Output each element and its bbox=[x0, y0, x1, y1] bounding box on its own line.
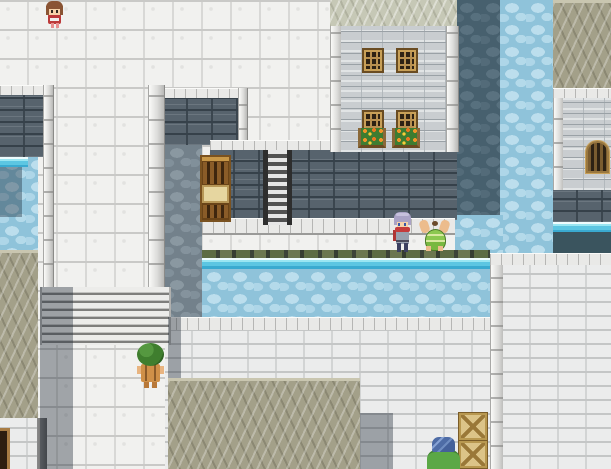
npc-hero[interactable] bbox=[392, 212, 413, 253]
lower-roof-left bbox=[0, 250, 38, 421]
afro-leg bbox=[152, 382, 157, 388]
canal-water bbox=[202, 269, 490, 318]
retaining-wall bbox=[210, 150, 457, 220]
npc-green-cloak[interactable] bbox=[427, 437, 460, 469]
hero-eye bbox=[404, 223, 406, 226]
pool-left-shadow bbox=[0, 167, 22, 217]
shadow-stairs-plaza bbox=[40, 287, 73, 469]
window-glass bbox=[366, 52, 380, 69]
metal-ladder[interactable] bbox=[263, 150, 292, 225]
shadow-lower-plaza bbox=[360, 413, 393, 469]
building-right-lower-wall bbox=[553, 190, 611, 222]
window-upper-right[interactable] bbox=[396, 48, 418, 73]
girl-eye bbox=[56, 10, 58, 13]
afro-hair bbox=[137, 343, 164, 366]
channel-right-water bbox=[500, 0, 553, 253]
arch-window[interactable] bbox=[586, 141, 609, 173]
hero-scarf bbox=[395, 227, 410, 232]
doorway-bottom-left[interactable] bbox=[0, 428, 10, 469]
hero-hair-highlight bbox=[396, 213, 409, 216]
npc-girl[interactable] bbox=[45, 0, 64, 29]
walkway-rail-left bbox=[43, 85, 54, 287]
girl-hair-side bbox=[46, 6, 49, 15]
ledge-wall-mid bbox=[163, 98, 245, 145]
building-top-pillar-right bbox=[446, 26, 459, 152]
afro-body bbox=[141, 364, 160, 382]
girl-eye bbox=[51, 10, 53, 13]
building-right-roof bbox=[553, 0, 611, 93]
waterfall-basin-shadow bbox=[553, 232, 611, 253]
croucher-foot bbox=[438, 246, 443, 251]
shelf-slats-bottom bbox=[203, 205, 228, 218]
shadow-canal-wall bbox=[168, 317, 181, 378]
wooden-shelf-stack[interactable] bbox=[200, 155, 231, 222]
window-glass bbox=[400, 52, 414, 69]
shelf-lid bbox=[202, 157, 229, 161]
walkway-rail-right bbox=[148, 85, 165, 287]
flower-box-right bbox=[392, 128, 420, 148]
hero-belt bbox=[396, 240, 409, 242]
platform-bottom-right bbox=[503, 265, 611, 469]
girl-leg bbox=[51, 23, 54, 28]
girl-hair-side bbox=[60, 6, 63, 15]
blue-hair bbox=[432, 437, 455, 452]
flower-box-left bbox=[358, 128, 386, 148]
canal-cyan-edge bbox=[202, 258, 490, 269]
shelf-crate bbox=[202, 185, 229, 203]
croucher-head bbox=[432, 221, 438, 226]
girl-apron bbox=[50, 18, 59, 21]
shelf-slats-top bbox=[203, 162, 228, 184]
hero-boot bbox=[397, 243, 401, 252]
crate-top[interactable] bbox=[458, 412, 488, 441]
channel-shadow-water bbox=[455, 0, 500, 218]
pool-left-cyan-lip bbox=[0, 157, 28, 167]
crate-bottom[interactable] bbox=[458, 440, 488, 469]
afro-strap bbox=[145, 365, 147, 381]
girl-leg bbox=[56, 23, 59, 28]
waterfall-outlet bbox=[553, 222, 611, 232]
building-top-roof bbox=[330, 0, 457, 28]
cloak bbox=[427, 450, 460, 469]
hero-hair-side bbox=[408, 219, 411, 225]
hero-boot bbox=[404, 243, 408, 252]
canal-walkway-trim bbox=[202, 218, 455, 235]
npc-green-afro[interactable] bbox=[137, 343, 164, 389]
croucher-foot bbox=[426, 246, 431, 251]
afro-arm bbox=[160, 366, 164, 374]
npc-croucher[interactable] bbox=[419, 216, 450, 252]
ledge-wall-left bbox=[0, 95, 43, 157]
window-upper-left[interactable] bbox=[362, 48, 384, 73]
lower-roof-center bbox=[168, 378, 360, 469]
game-viewport bbox=[0, 0, 611, 469]
hero-eye bbox=[398, 223, 400, 226]
afro-leg bbox=[144, 382, 149, 388]
afro-strap bbox=[154, 365, 156, 381]
hero-hair-side bbox=[394, 219, 397, 225]
